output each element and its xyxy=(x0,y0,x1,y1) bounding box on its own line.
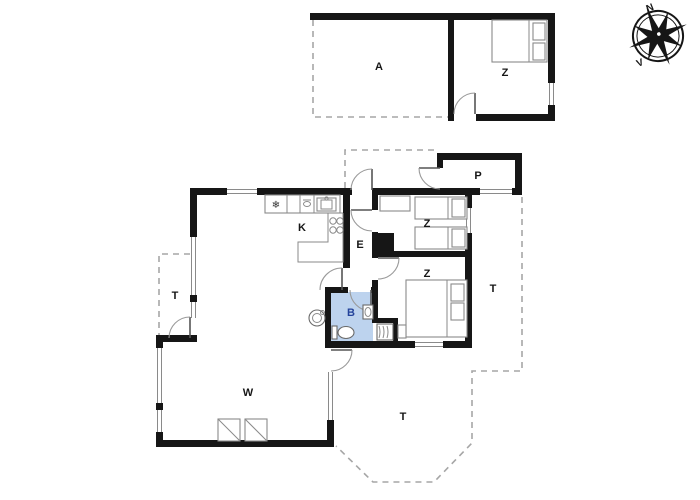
double-bed xyxy=(406,280,467,337)
washbasin-icon xyxy=(363,305,373,319)
single-bed xyxy=(415,227,467,249)
door-swing xyxy=(320,268,342,290)
pillow xyxy=(452,229,465,247)
room-label-terrace-bottom: T xyxy=(400,411,407,423)
floor-plan-drawing: A Z N xyxy=(0,0,700,500)
cabinet-unit xyxy=(218,419,240,441)
room-label-terrace-right: T xyxy=(490,283,497,295)
window xyxy=(156,410,163,432)
entrance-door-swing xyxy=(351,169,372,190)
annex-wall-bottom xyxy=(476,114,555,121)
dresser xyxy=(380,196,410,211)
room-label-bedroom2: Z xyxy=(424,268,431,280)
stove-icon xyxy=(330,218,343,233)
floor-plan-page: A Z N xyxy=(0,0,700,500)
window xyxy=(548,83,555,105)
washing-machine-icon xyxy=(309,310,325,326)
bedroom2-furniture xyxy=(398,280,467,338)
pillow xyxy=(451,303,464,320)
room-label-living-room: W xyxy=(243,387,254,399)
door-swing xyxy=(419,168,440,189)
toilet-icon xyxy=(332,326,354,339)
room-label-kitchen: K xyxy=(298,222,306,234)
window xyxy=(227,188,257,195)
cabinet-unit xyxy=(245,419,267,441)
shower-icon xyxy=(377,324,393,340)
room-label-entry: E xyxy=(356,239,363,251)
door-swing xyxy=(378,258,399,279)
door-swing xyxy=(331,350,352,371)
annex-wall-top xyxy=(310,13,555,20)
room-label-bedroom1: Z xyxy=(424,218,431,230)
annex-wall-divider xyxy=(448,20,454,114)
room-label-annex-z: Z xyxy=(502,67,509,79)
window xyxy=(480,188,512,195)
room-label-terrace-left: T xyxy=(172,290,179,302)
pillow xyxy=(452,199,465,217)
window xyxy=(190,302,197,318)
wall-block xyxy=(378,233,394,252)
room-label-annex-a: A xyxy=(375,61,383,73)
window xyxy=(415,341,443,348)
door-swing xyxy=(454,93,475,114)
window xyxy=(156,348,163,403)
double-bed xyxy=(492,20,547,62)
room-label-p: P xyxy=(474,170,481,182)
sink-with-faucet-icon xyxy=(317,197,336,211)
room-label-bathroom: B xyxy=(347,307,355,319)
freezer-icon: ❄ xyxy=(272,200,280,211)
compass-rose-icon: N V xyxy=(618,0,699,76)
single-bed xyxy=(415,197,467,219)
terrace-entry-outline xyxy=(345,150,437,188)
door-swing xyxy=(169,317,190,338)
window xyxy=(190,237,197,295)
nightstand xyxy=(398,325,406,338)
compass-west-label: V xyxy=(635,57,646,70)
living-room-units xyxy=(218,419,267,441)
pillow xyxy=(533,43,545,60)
pillow xyxy=(451,284,464,301)
pillow xyxy=(533,23,545,40)
annex-wall-bottom-stub xyxy=(448,114,454,121)
window xyxy=(327,372,334,420)
annex-building: A Z xyxy=(310,13,555,121)
door-swing xyxy=(351,210,372,231)
